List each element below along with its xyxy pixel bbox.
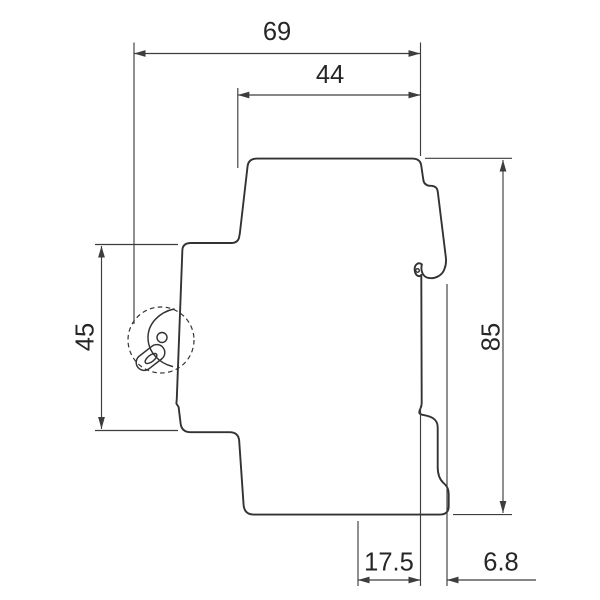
dimension-label-85: 85 bbox=[478, 323, 506, 351]
dimension-drawing-page: 69 44 45 85 17.5 6.8 bbox=[0, 0, 600, 600]
dimension-label-44: 44 bbox=[316, 61, 344, 89]
dimension-label-69: 69 bbox=[263, 18, 291, 46]
dimension-label-17.5: 17.5 bbox=[364, 549, 414, 577]
dimension-label-45: 45 bbox=[72, 323, 100, 351]
breaker-side-profile-drawing: 69 44 45 85 17.5 6.8 bbox=[0, 0, 600, 600]
dimension-label-6.8: 6.8 bbox=[483, 549, 518, 577]
drawing-background bbox=[0, 0, 600, 600]
